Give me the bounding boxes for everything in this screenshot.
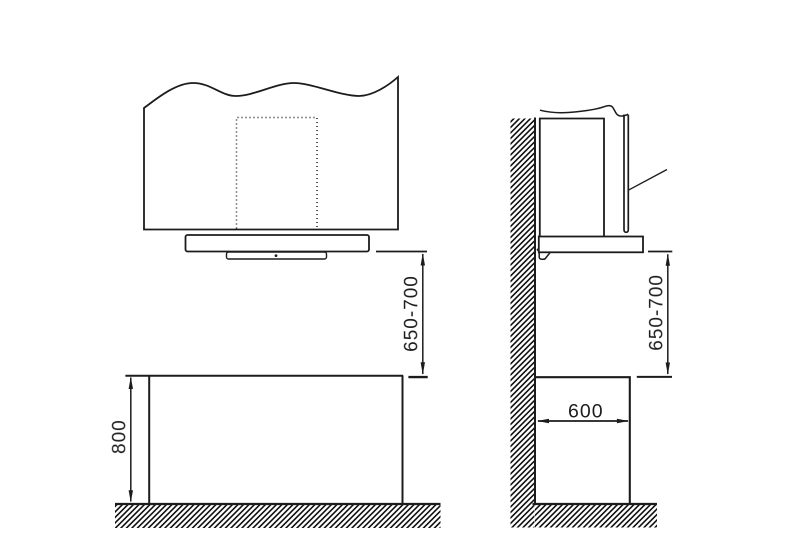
svg-text:650-700: 650-700: [646, 274, 667, 351]
svg-text:650-700: 650-700: [401, 275, 422, 352]
svg-text:800: 800: [109, 419, 130, 454]
svg-text:600: 600: [568, 401, 604, 423]
